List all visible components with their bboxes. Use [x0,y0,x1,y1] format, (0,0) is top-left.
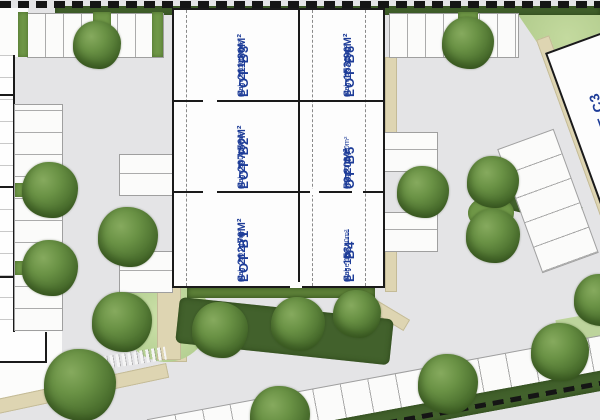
planting-strip [152,12,163,57]
stall-group-west-1 [120,155,172,195]
tree [466,209,520,263]
border-opening [310,189,319,195]
tree [73,21,121,69]
stall-group-east-1 [385,133,437,171]
lot-b1-etage: etag [236,267,245,282]
lot-c3-name: LOT C3 [586,91,600,149]
stall-group-east-2 [385,213,437,251]
tree [531,323,589,381]
left-building-divider [0,276,15,278]
left-building-corner [0,332,47,363]
border-opening [203,189,217,195]
tree [333,290,381,338]
border-opening [352,189,363,195]
tree [442,17,494,69]
lot-cell-b3: LOT B3 S : 211.80M² rdch : 101.10m² etag… [174,10,298,100]
tree [397,166,449,218]
lot-cell-b2: LOT B2 S : 207.50M² rdch : 98.70m² etage… [174,102,298,191]
site-plan: LOT B3 S : 211.80M² rdch : 101.10m² etag… [0,0,600,420]
lot-cell-b1: LOT B1 S : 212.70M² rdch : 101.10m² etag [174,193,298,286]
lot-cell-b5: OT B5 50.20M² : 98.70m² etage : 51.50m² [300,102,383,191]
lot-b5-etage: etage : 51.50m² [342,136,351,189]
tree [271,297,325,351]
planting-strip [18,12,28,57]
tree [92,292,152,352]
tree [418,354,478,414]
tree [192,302,248,358]
lot-b6-etage: etage : 52.80m² [342,44,351,97]
lot-cell-b6: LOT B6 S : 153.90M² rdch : 101.10m² etag… [300,10,383,100]
boundary-dashes-top [0,1,600,8]
left-building [0,55,15,363]
left-building-divider [0,94,15,96]
tree [98,207,158,267]
lot-b4-etage: etage : 52.80m² [342,229,351,282]
left-building-divider [0,186,15,188]
lot-cell-b4: L B4 S : 153 ---- rdch : 101... etage : … [300,193,383,286]
border-opening [290,282,302,288]
lot-b3-etage: etage : 110.70m² [236,41,245,97]
lot-block: LOT B3 S : 211.80M² rdch : 101.10m² etag… [172,8,385,288]
path-block-right-lower [385,251,397,292]
tree [22,240,78,296]
border-opening [203,98,217,104]
tree [22,162,78,218]
lot-b2-etage: etage : 108.80m² [236,132,245,189]
tree [44,349,116,420]
lot-c3-label: LOT C3 S : [574,64,600,149]
tree [467,156,519,208]
path-block-right-upper [385,57,397,133]
